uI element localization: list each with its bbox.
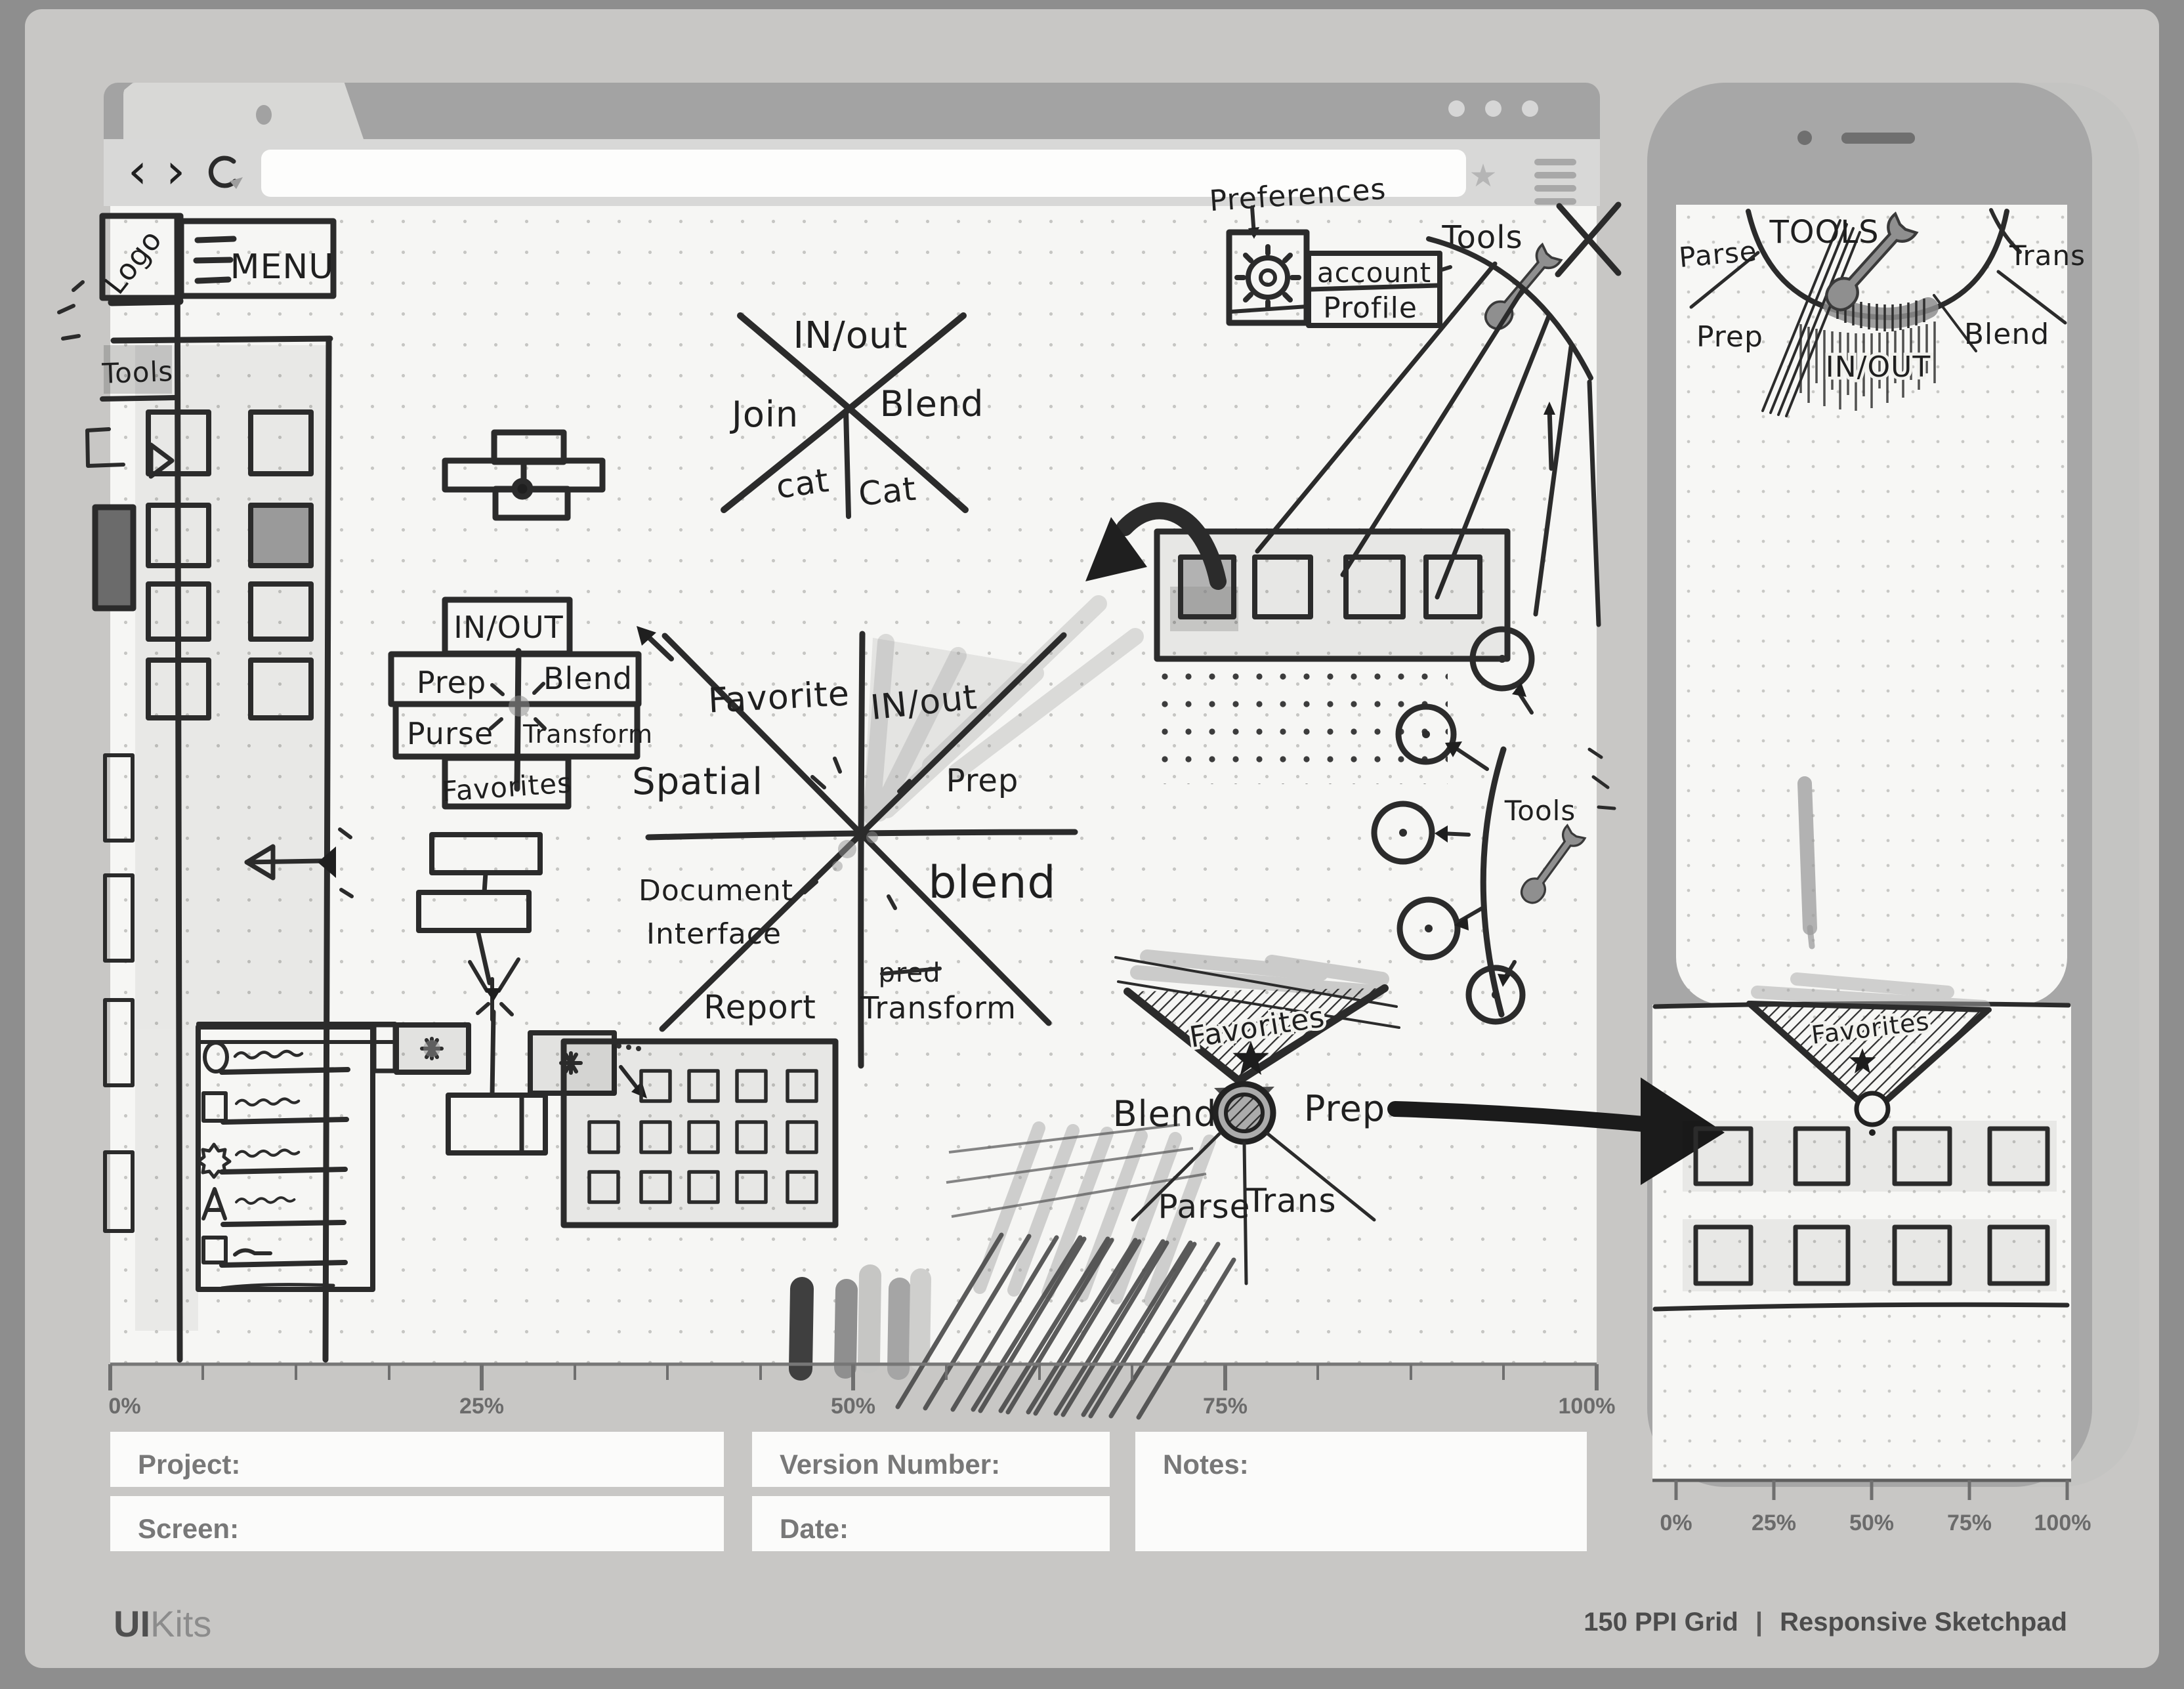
menu-label: MENU (230, 247, 335, 287)
crosshatch-scribble (898, 1235, 1234, 1417)
phone-ruler-50: 50% (1849, 1511, 1894, 1535)
fan-bl-label: Parse (1158, 1188, 1251, 1226)
x-mark-icon (1558, 205, 1618, 274)
star8-se-label: blend (928, 857, 1056, 909)
phone-prep-label: Prep (1696, 320, 1763, 354)
star8-s-label: Report (703, 988, 816, 1026)
star8-diagram-sketch: Favorite IN/out Spatial Prep Document In… (632, 604, 1135, 1066)
wheel-tools-label: Tools (1504, 795, 1576, 827)
fan-diagram-sketch: Favorites Blend Prep Parse Trans (1113, 957, 1399, 1283)
xdiag-right-label: Blend (880, 383, 984, 425)
left-margin-boxes (105, 755, 133, 1231)
xdiag-br-label: Cat (856, 470, 918, 514)
sketch-overlay: ‹ › ★ Logo MENU (25, 9, 2184, 1689)
wheel-section-sketch: Tools (1085, 511, 1614, 1022)
star8-nw-label: Favorite (707, 674, 851, 720)
stack-diagram-sketch: IN/OUT Prep Blend Purse Transform Favori… (391, 600, 671, 808)
xdiag-top-label: IN/out (793, 314, 908, 357)
prefs-tools-label: Tools (1441, 219, 1522, 256)
logo-menu-sketch: Logo MENU (98, 216, 335, 341)
star8-w-label: Spatial (632, 761, 763, 803)
phone-arc-sketch: Parse TOOLS Trans Prep Blend IN/OUT (1677, 210, 2086, 946)
sidebar-sketch: Tools (59, 218, 395, 1360)
stack-top-label: IN/OUT (453, 610, 563, 645)
phone-ruler-25: 25% (1752, 1511, 1796, 1535)
stack-lowr-label: Transform (522, 720, 653, 749)
wrench-icon (1517, 825, 1585, 907)
x-diagram-sketch: IN/out Join Blend cat Cat (724, 314, 984, 516)
ruler-75: 75% (1203, 1394, 1248, 1419)
prefs-profile-label: Profile (1323, 291, 1417, 325)
marker-swatches (801, 1276, 921, 1369)
stack-bottom-label: Favorites (441, 766, 574, 808)
back-icon[interactable]: ‹ (128, 143, 148, 199)
phone-ruler-75: 75% (1947, 1511, 1992, 1535)
camera-icon (1797, 131, 1812, 145)
ne-arrow (637, 626, 671, 659)
fan-right-label: Prep (1304, 1088, 1385, 1129)
phone-trans-label: Trans (2009, 240, 2086, 272)
wheel-sparkles (1589, 749, 1614, 808)
stack-midl-label: Prep (417, 665, 486, 700)
stack-midr-label: Blend (543, 661, 633, 696)
bookmark-star-icon[interactable]: ★ (1469, 157, 1497, 194)
ruler-100: 100% (1559, 1394, 1616, 1419)
ruler-50: 50% (831, 1394, 875, 1419)
overlap-rects-sketch (445, 432, 602, 518)
phone-tools-label: TOOLS (1769, 214, 1879, 251)
phone-ruler: 0% 25% 50% 75% 100% (1652, 1480, 2091, 1535)
phone-ruler-100: 100% (2034, 1511, 2091, 1535)
forward-icon[interactable]: › (166, 143, 186, 199)
star8-s2-label: Transform (860, 990, 1017, 1026)
phone-blend-label: Blend (1964, 318, 2049, 351)
menu-icon[interactable] (1534, 159, 1576, 205)
star8-sw2-label: Interface (646, 917, 782, 951)
refresh-icon[interactable] (211, 158, 243, 189)
phone-parse-label: Parse (1677, 235, 1758, 274)
logo-label: Logo (98, 223, 169, 301)
big-arrow-to-phone (1395, 1077, 1725, 1185)
phone-band-sketch: Favorites (1655, 979, 2068, 1309)
fan-br-label: Trans (1246, 1182, 1336, 1220)
phone-ruler-0: 0% (1660, 1511, 1692, 1535)
fan-left-label: Blend (1113, 1093, 1217, 1135)
xdiag-bl-label: cat (774, 461, 831, 507)
sketchpad-page: Project: Screen: Version Number: Date: N… (25, 9, 2159, 1668)
browser-ruler: 0% 25% 50% 75% 100% (108, 1364, 1615, 1419)
star8-e-label: Prep (946, 762, 1019, 799)
prefs-title: Preferences (1208, 173, 1387, 219)
ruler-0: 0% (108, 1394, 140, 1419)
star8-sw1-label: Document (639, 874, 793, 907)
gray-marker-stroke (1805, 783, 1810, 928)
list-panel-sketch (198, 1024, 395, 1289)
dark-swatch-box (95, 507, 133, 608)
prefs-account-label: account (1317, 257, 1431, 289)
stack-lowl-label: Purse (407, 716, 493, 751)
hamburger-icon (196, 239, 234, 281)
phone-inout-label: IN/OUT (1826, 350, 1931, 384)
dot-matrix (1155, 667, 1448, 784)
ruler-25: 25% (459, 1394, 504, 1419)
grid-panel-sketch (564, 1041, 835, 1225)
xdiag-left-label: Join (730, 394, 799, 435)
sidebar-tools-label: Tools (101, 355, 174, 390)
gear-icon (1237, 247, 1299, 308)
speaker-icon (1841, 133, 1915, 144)
